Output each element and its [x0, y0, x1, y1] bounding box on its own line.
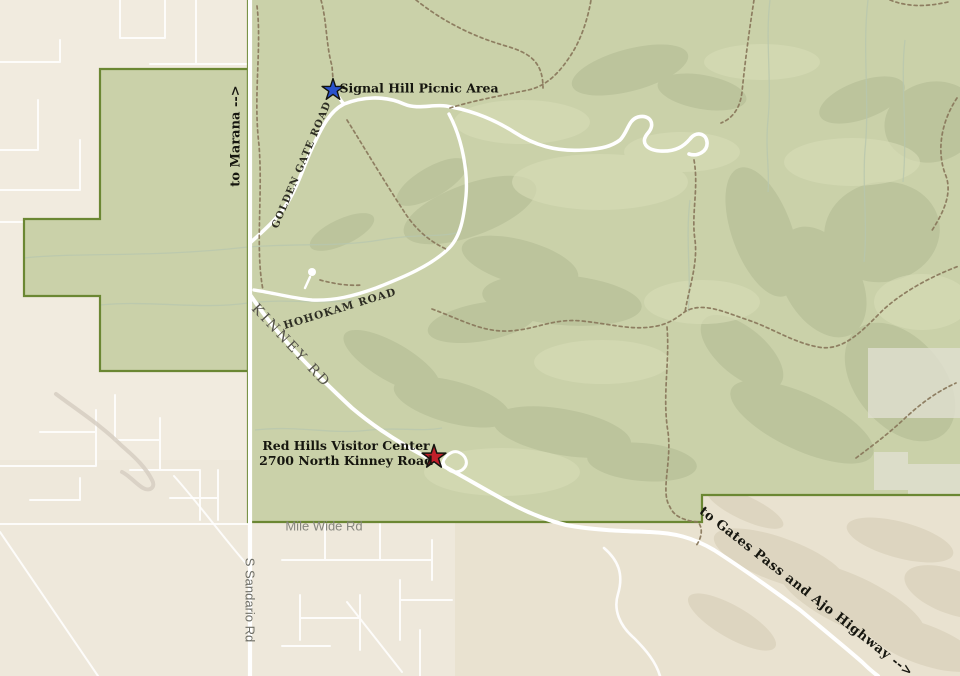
sandario-rd-label: S Sandario Rd	[243, 558, 258, 643]
visitor-center-label: Red Hills Visitor Center 2700 North Kinn…	[259, 438, 433, 468]
map-canvas	[0, 0, 960, 676]
mile-wide-rd-label: Mile Wide Rd	[285, 519, 362, 534]
trailhead-loop	[308, 268, 316, 276]
visitor-center-label-line1: Red Hills Visitor Center	[259, 438, 433, 453]
park-map: Signal Hill Picnic Area Red Hills Visito…	[0, 0, 960, 676]
to-marana-label: to Marana -->	[229, 85, 244, 186]
visitor-center-label-line2: 2700 North Kinney Road	[259, 453, 433, 468]
signal-hill-picnic-area-label: Signal Hill Picnic Area	[339, 81, 498, 96]
